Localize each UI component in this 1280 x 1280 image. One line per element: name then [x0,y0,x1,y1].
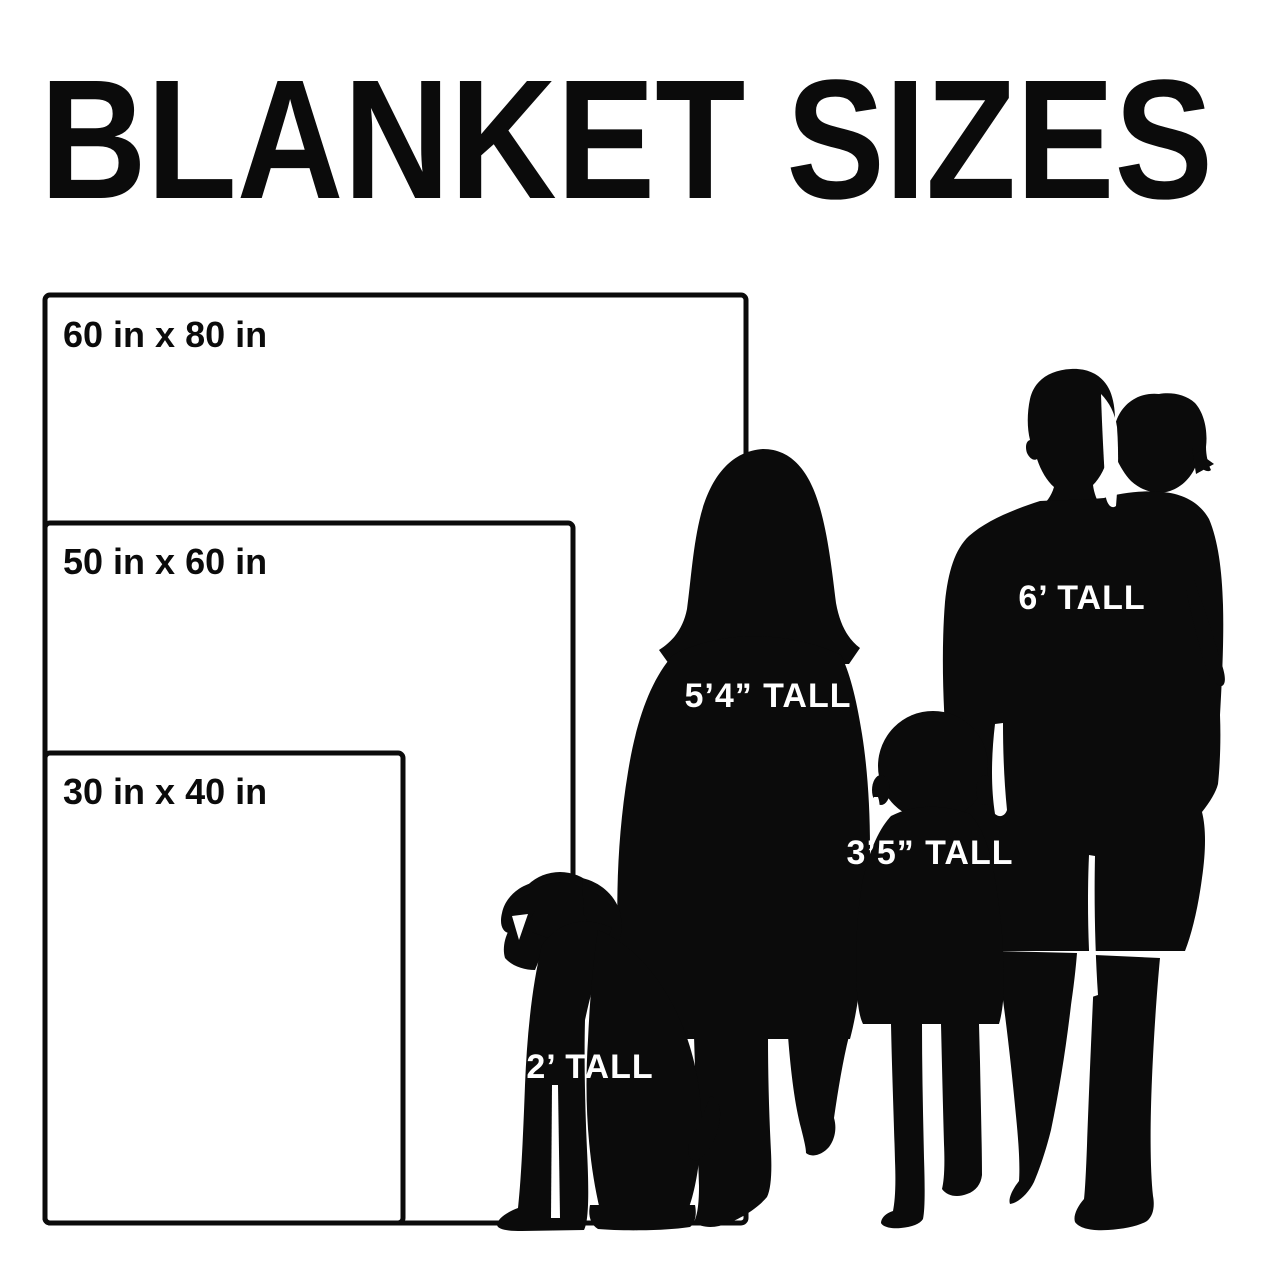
man-height-label: 6’ TALL [1018,579,1145,617]
gap-girl-woman [870,797,879,825]
page-title: BLANKET SIZES [40,45,1213,235]
girl-head [878,711,988,821]
dog-height-label: 2’ TALL [526,1048,653,1086]
gap-man-head-toddler-face [1101,394,1118,507]
toddler-head [1113,393,1211,492]
girl-right-leg [941,1024,982,1196]
woman-right-leg [788,1036,849,1155]
man-left-leg [996,951,1077,1204]
blanket-sizes-infographic: BLANKET SIZES 60 in x 80 in 50 in x 60 i… [0,0,1280,1280]
infographic-svg: BLANKET SIZES 60 in x 80 in 50 in x 60 i… [0,0,1280,1280]
blanket-rect-30x40 [45,753,403,1223]
girl-left-leg [881,1024,925,1228]
dog-hind-paws [589,1205,695,1230]
girl-hair-right [976,775,994,805]
girl-silhouette [856,711,1004,1228]
woman-height-label: 5’4” TALL [684,677,851,715]
child-height-label: 3’5” TALL [846,834,1013,872]
blanket-size-label-30x40: 30 in x 40 in [63,771,267,812]
blanket-size-label-50x60: 50 in x 60 in [63,541,267,582]
blanket-size-label-60x80: 60 in x 80 in [63,314,267,355]
man-right-leg [1074,955,1160,1230]
